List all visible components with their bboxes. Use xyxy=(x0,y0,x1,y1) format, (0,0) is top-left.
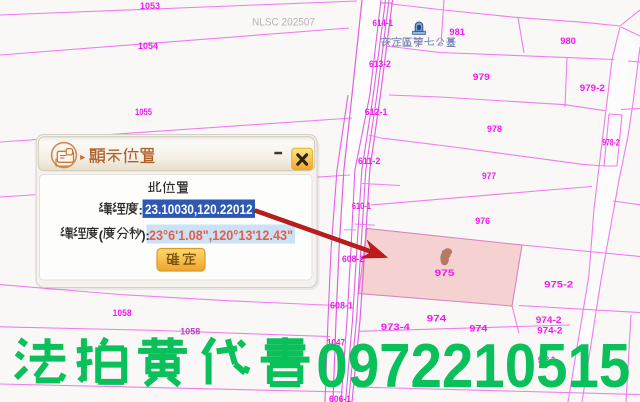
svg-text:978-2: 978-2 xyxy=(602,138,619,148)
svg-text:614-1: 614-1 xyxy=(373,18,394,28)
svg-text:977: 977 xyxy=(482,171,496,181)
svg-text::: : xyxy=(139,203,143,218)
svg-text:610-1: 610-1 xyxy=(352,201,371,211)
svg-text:975-2: 975-2 xyxy=(544,280,573,291)
svg-text:1053: 1053 xyxy=(140,1,160,11)
svg-text:608-2: 608-2 xyxy=(342,254,364,264)
svg-text:974-2: 974-2 xyxy=(536,315,562,325)
svg-text:1058: 1058 xyxy=(113,308,132,318)
svg-text:973-4: 973-4 xyxy=(381,322,410,332)
svg-text:(: ( xyxy=(99,228,104,243)
svg-text:611-2: 611-2 xyxy=(358,156,380,166)
svg-text:974: 974 xyxy=(427,314,446,324)
svg-text:0972210515: 0972210515 xyxy=(316,332,630,401)
svg-text:976: 976 xyxy=(475,216,490,226)
svg-text:1058: 1058 xyxy=(180,327,200,337)
svg-text:23°6'1.08",120°13'12.43": 23°6'1.08",120°13'12.43" xyxy=(149,228,293,243)
svg-text:NLSC 202507: NLSC 202507 xyxy=(252,17,315,29)
svg-text:23.10030,120.22012: 23.10030,120.22012 xyxy=(145,201,253,217)
svg-text:1055: 1055 xyxy=(135,107,152,117)
svg-text:980: 980 xyxy=(560,36,576,46)
svg-text:981: 981 xyxy=(449,27,465,37)
svg-text:1054: 1054 xyxy=(138,41,158,51)
svg-text:608-1: 608-1 xyxy=(330,301,353,311)
svg-text:975: 975 xyxy=(435,268,456,279)
svg-text:612-1: 612-1 xyxy=(365,107,388,117)
svg-text:613-2: 613-2 xyxy=(369,59,391,69)
svg-text:978: 978 xyxy=(487,124,502,134)
svg-text:979: 979 xyxy=(473,72,490,82)
svg-text:979-2: 979-2 xyxy=(580,83,605,93)
